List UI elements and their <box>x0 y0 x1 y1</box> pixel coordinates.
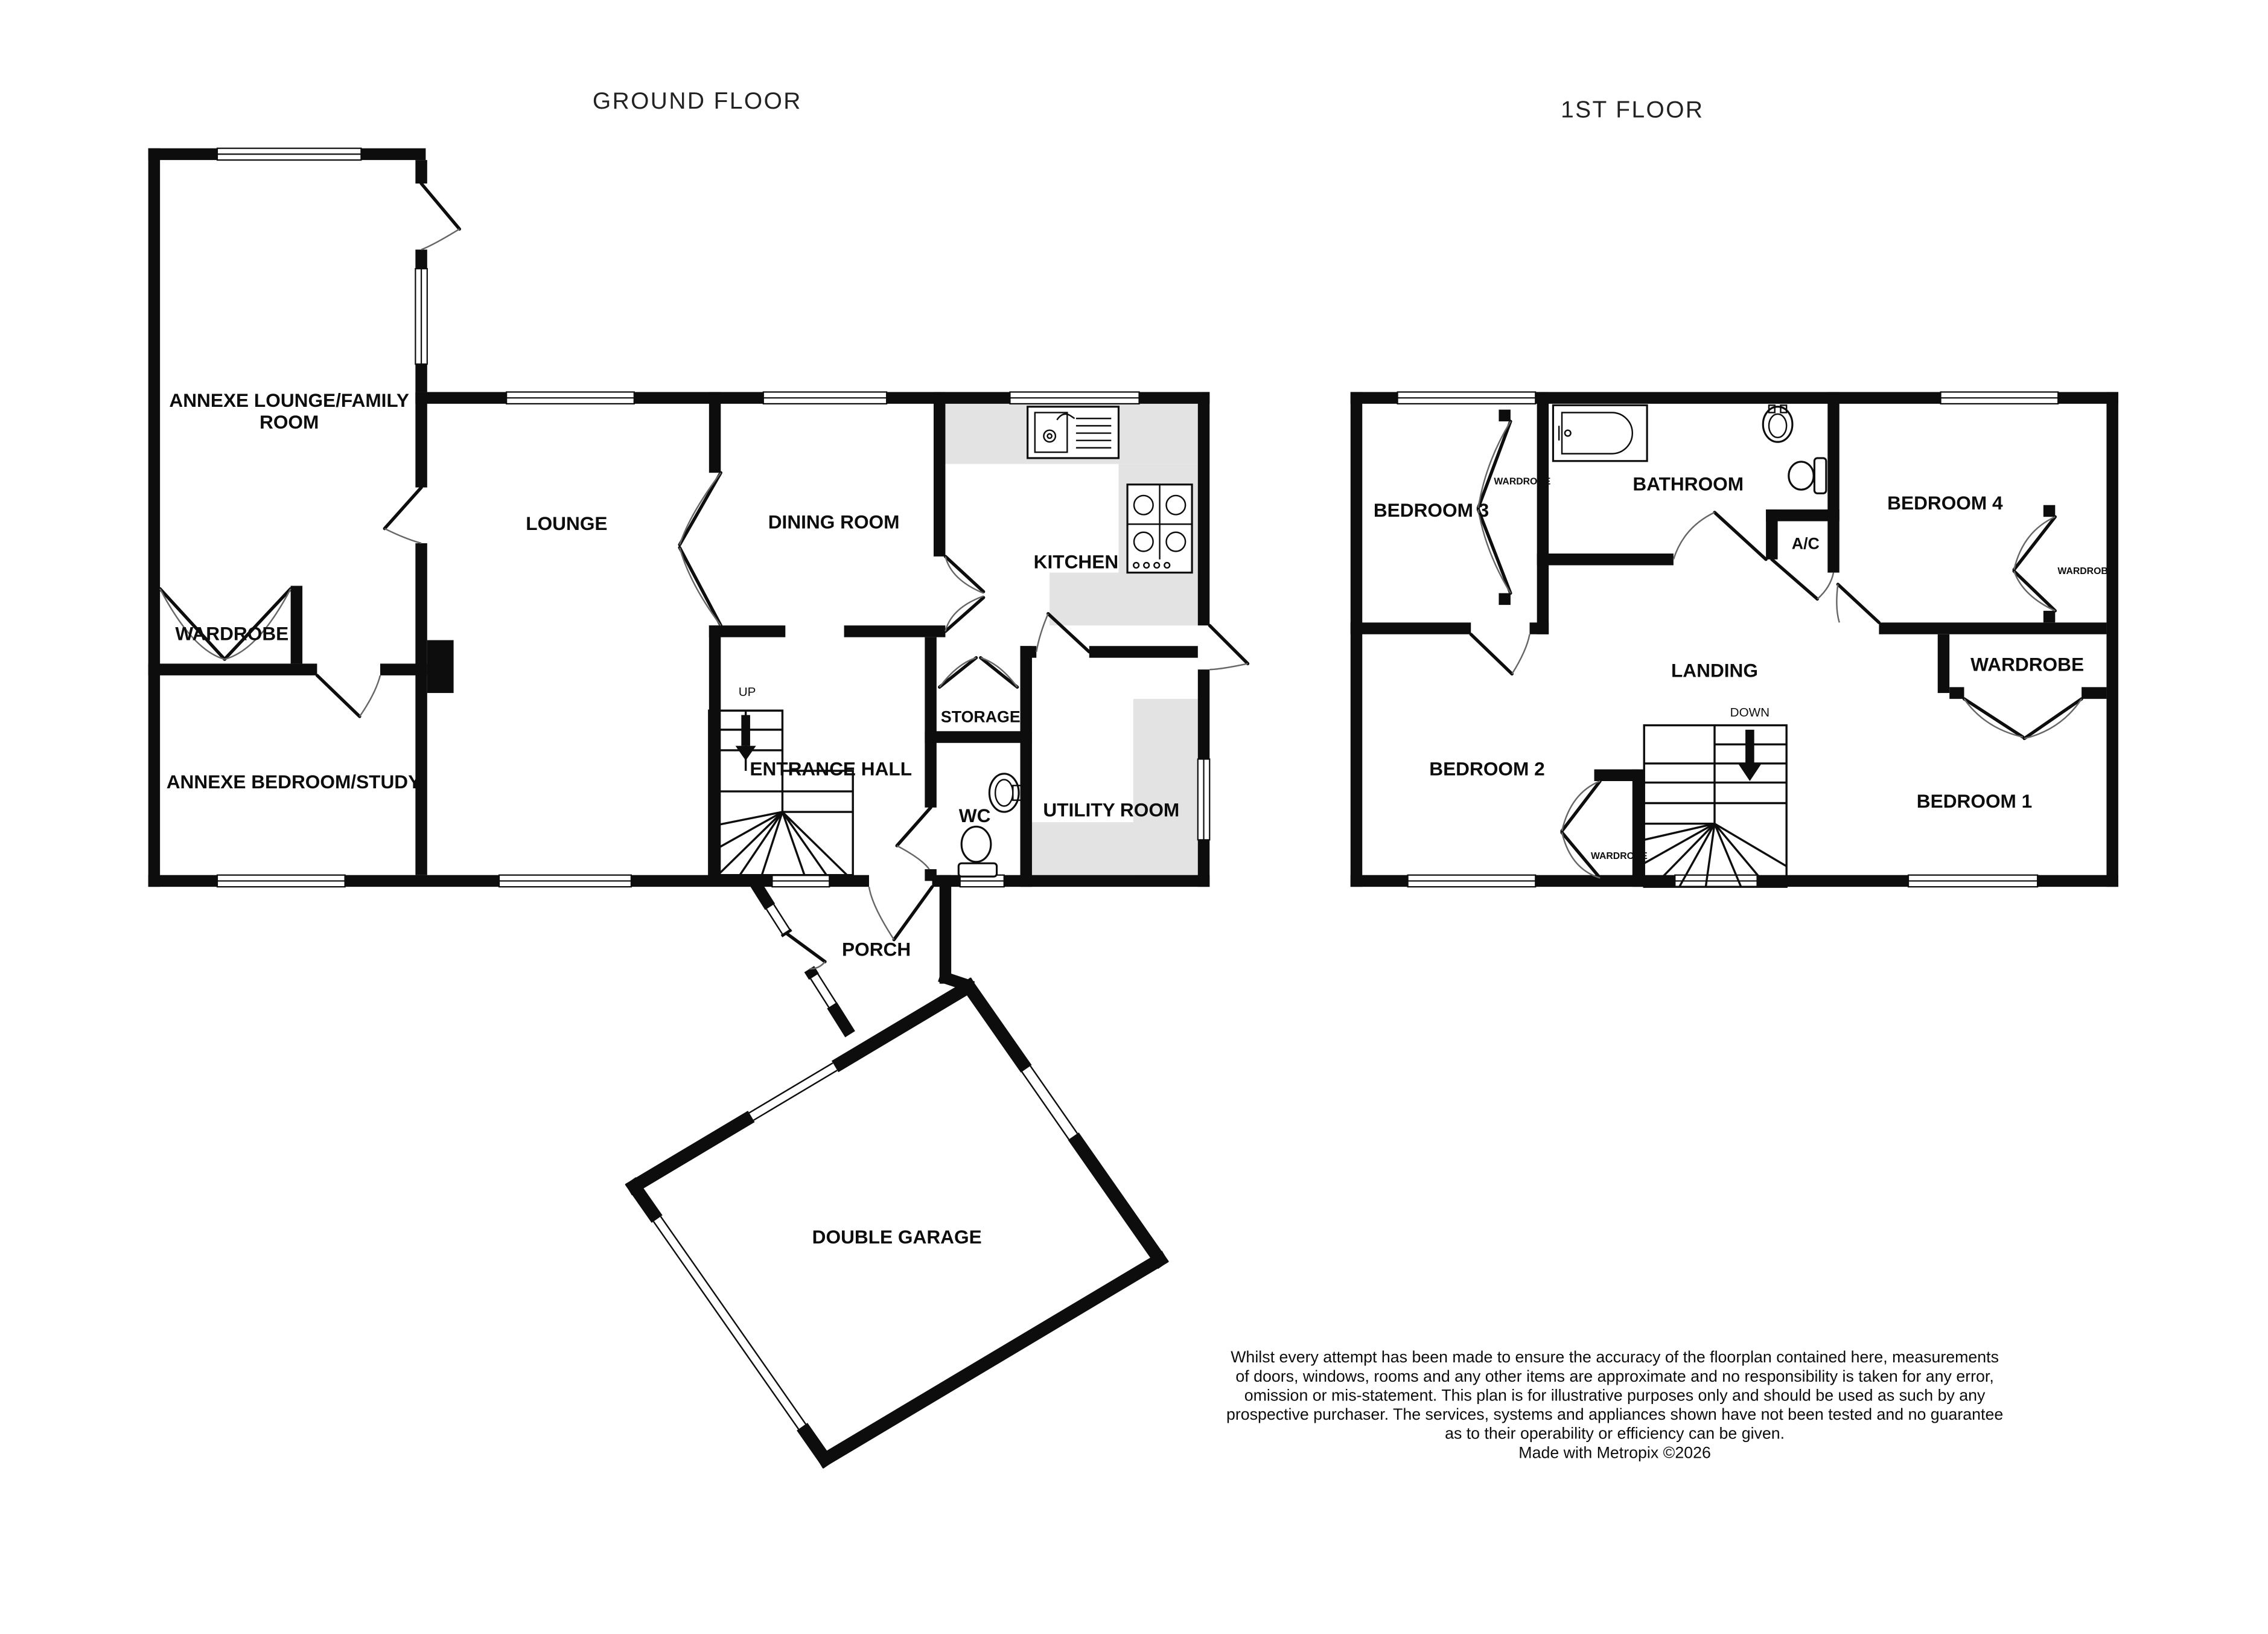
label-bedroom2: BEDROOM 2 <box>1429 758 1544 779</box>
label-bedroom1: BEDROOM 1 <box>1917 790 2032 812</box>
label-wardrobe-big: WARDROBE <box>1970 654 2084 675</box>
label-bathroom: BATHROOM <box>1633 473 1744 494</box>
disclaimer-block: Whilst every attempt has been made to en… <box>1226 1348 2003 1461</box>
label-lounge: LOUNGE <box>526 512 607 534</box>
floorplan-page: GROUND FLOOR ANNEXE LOUNGE/FAMILY ROOM W… <box>0 0 2268 1634</box>
label-annexe-wardrobe: WARDROBE <box>175 623 288 645</box>
label-bedroom3: BEDROOM 3 <box>1374 499 1489 521</box>
disclaimer-line-6: Made with Metropix ©2026 <box>1518 1443 1711 1461</box>
first-floor-title: 1ST FLOOR <box>1561 97 1704 123</box>
disclaimer-line-4: prospective purchaser. The services, sys… <box>1226 1405 2003 1423</box>
label-entrance-hall: ENTRANCE HALL <box>750 758 912 779</box>
label-landing: LANDING <box>1671 659 1758 681</box>
first-floor-windows <box>1398 392 2059 887</box>
label-wc: WC <box>959 805 991 826</box>
first-floor-walls <box>1351 392 2118 887</box>
label-down: DOWN <box>1730 706 1769 720</box>
label-annexe-lounge-line1: ANNEXE LOUNGE/FAMILY <box>169 389 409 411</box>
label-double-garage: DOUBLE GARAGE <box>812 1226 982 1248</box>
disclaimer-line-2: of doors, windows, rooms and any other i… <box>1235 1367 1993 1385</box>
label-utility-room: UTILITY ROOM <box>1043 799 1179 820</box>
label-kitchen: KITCHEN <box>1034 551 1118 572</box>
label-ac: A/C <box>1792 535 1820 553</box>
label-porch: PORCH <box>842 938 911 960</box>
ground-floor-plan: GROUND FLOOR ANNEXE LOUNGE/FAMILY ROOM W… <box>148 88 1248 1460</box>
down-arrow <box>1745 730 1754 764</box>
first-floor-plan: WARDROBE WARDROBE WARDROBE <box>1351 97 2118 887</box>
disclaimer-line-1: Whilst every attempt has been made to en… <box>1231 1348 1999 1366</box>
label-up: UP <box>739 685 756 699</box>
disclaimer-line-3: omission or mis-statement. This plan is … <box>1244 1386 1986 1404</box>
first-floor-stairs <box>1644 726 1786 887</box>
kitchen-hob <box>1127 485 1192 573</box>
label-wardrobe-bed4: WARDROBE <box>2057 566 2114 576</box>
floorplan-canvas: GROUND FLOOR ANNEXE LOUNGE/FAMILY ROOM W… <box>0 0 2268 1634</box>
label-storage: STORAGE <box>941 708 1021 726</box>
label-annexe-lounge-line2: ROOM <box>260 411 319 433</box>
disclaimer-line-5: as to their operability or efficiency ca… <box>1445 1425 1785 1443</box>
ground-floor-stairs <box>709 710 853 875</box>
kitchen-sink <box>1028 407 1119 458</box>
up-arrow <box>741 715 750 746</box>
label-annexe-bedroom: ANNEXE BEDROOM/STUDY <box>167 771 421 793</box>
label-bedroom4: BEDROOM 4 <box>1887 492 2003 514</box>
label-dining-room: DINING ROOM <box>768 511 900 533</box>
ground-floor-title: GROUND FLOOR <box>593 88 802 114</box>
garage <box>634 987 1160 1460</box>
